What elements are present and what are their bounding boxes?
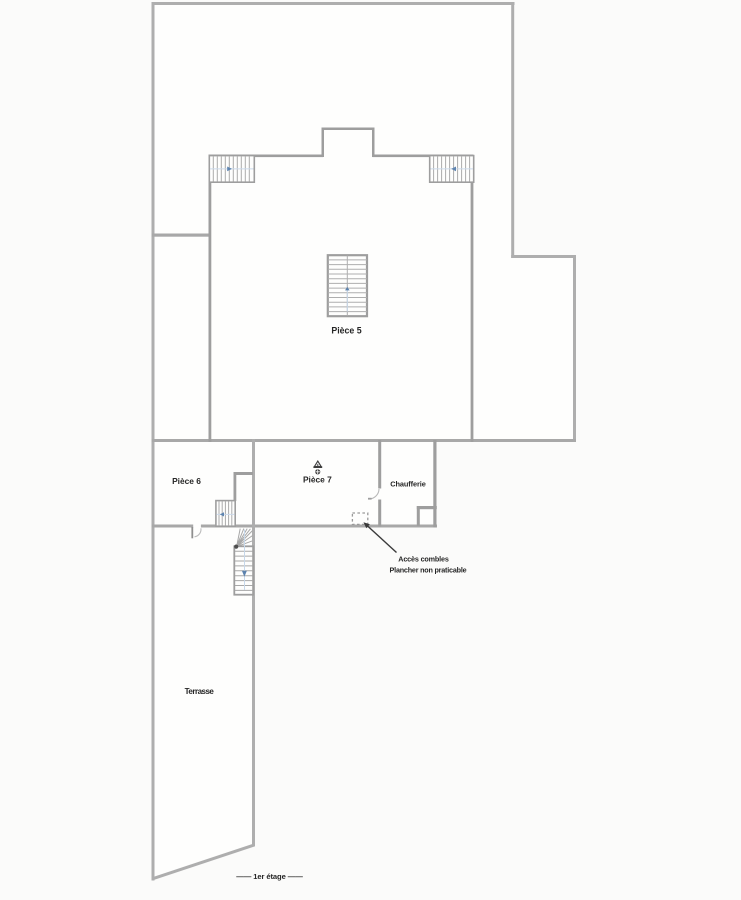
svg-text:Plancher non praticable: Plancher non praticable [390, 566, 467, 575]
svg-text:Pièce 5: Pièce 5 [331, 326, 361, 336]
svg-text:Chaufferie: Chaufferie [390, 480, 426, 489]
svg-text:Accès combles: Accès combles [398, 555, 449, 564]
svg-text:Pièce 6: Pièce 6 [172, 476, 201, 486]
svg-text:—— 1er étage ——: —— 1er étage —— [236, 872, 303, 881]
svg-text:Pièce 7: Pièce 7 [303, 475, 332, 485]
svg-text:Terrasse: Terrasse [185, 687, 215, 696]
